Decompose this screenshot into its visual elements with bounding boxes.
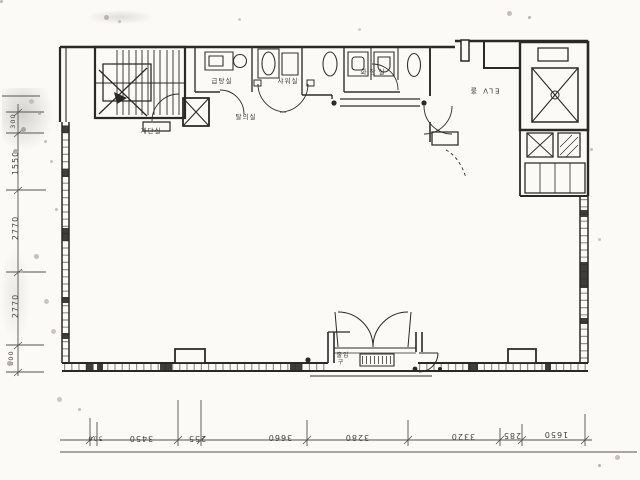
- door-arc: [424, 106, 452, 134]
- dressing-room-label: 탈의실: [236, 114, 257, 121]
- toilet-room-label: 화장실: [361, 69, 388, 76]
- top-wall-stub: [461, 40, 469, 61]
- column-dot: [421, 100, 426, 105]
- left-dimension: 300: [10, 113, 17, 128]
- left-dimension: 1550: [12, 151, 20, 175]
- interior-walls: [152, 80, 466, 178]
- water-heater: [234, 55, 247, 68]
- staircase: [95, 47, 185, 131]
- door-arc: [220, 90, 244, 114]
- floorplan-linework: [0, 0, 640, 480]
- elevator-cab-x: [532, 68, 578, 122]
- pilaster-left: [175, 349, 205, 363]
- bottom-dimension: 3280: [345, 433, 369, 441]
- shower-room-label: 샤워실: [278, 78, 299, 85]
- bottom-dimension: 285: [503, 431, 521, 439]
- scan-noise: [0, 0, 3, 3]
- column-dot: [305, 357, 310, 362]
- entrance-door-arc: [338, 312, 373, 347]
- counterweight: [538, 48, 568, 61]
- hall-wall: [340, 99, 420, 106]
- left-dimension: 600: [8, 350, 15, 365]
- pilaster-right: [508, 349, 536, 363]
- toilet: [408, 54, 421, 77]
- dimension-lines-left: [2, 96, 46, 376]
- entrance-label-line2: 구: [338, 360, 345, 366]
- stair-room-label: 계단실: [141, 128, 162, 135]
- column-dot: [438, 367, 442, 371]
- dimension-ticks: [2, 96, 46, 372]
- left-dimension: 2770: [12, 216, 20, 240]
- bottom-dimension: 255: [188, 434, 206, 442]
- floor-plan-sheet: 계단실 급탕실 샤워실 탈의실 화장실 ELV 홀 출입 구 300 3450 …: [0, 0, 640, 480]
- elevator-shaft: [520, 42, 588, 196]
- window-wall-left: [62, 122, 69, 363]
- window-wall-right: [580, 196, 588, 363]
- entrance-door-arc: [373, 312, 408, 347]
- wall-stub: [432, 132, 458, 145]
- boiler-room-label: 급탕실: [212, 78, 233, 85]
- pipe-shaft: [183, 98, 209, 126]
- bottom-dimension: 1650: [544, 430, 568, 438]
- window-wall-bottom: [64, 349, 586, 367]
- elevator-hall-label: ELV 홀: [468, 87, 499, 94]
- bottom-dimension: 300: [87, 435, 102, 442]
- bathtub: [258, 49, 279, 78]
- column-dot: [331, 100, 336, 105]
- bottom-dimension: 3660: [268, 433, 292, 441]
- column-dot: [413, 367, 418, 372]
- door-arc: [280, 84, 308, 112]
- dashed-swing: [446, 150, 466, 178]
- dimension-lines-bottom: [60, 400, 637, 452]
- left-dimension: 2770: [12, 294, 20, 318]
- door-arc: [424, 106, 452, 134]
- door-arc: [258, 84, 286, 112]
- toilet: [323, 52, 337, 76]
- outer-walls: [60, 40, 588, 376]
- floor-plan-drawing: 계단실 급탕실 샤워실 탈의실 화장실 ELV 홀 출입 구 300 3450 …: [0, 0, 640, 480]
- bottom-dimension: 3320: [451, 432, 475, 440]
- entrance-mat: [360, 354, 394, 366]
- bottom-dimension: 3450: [129, 434, 153, 442]
